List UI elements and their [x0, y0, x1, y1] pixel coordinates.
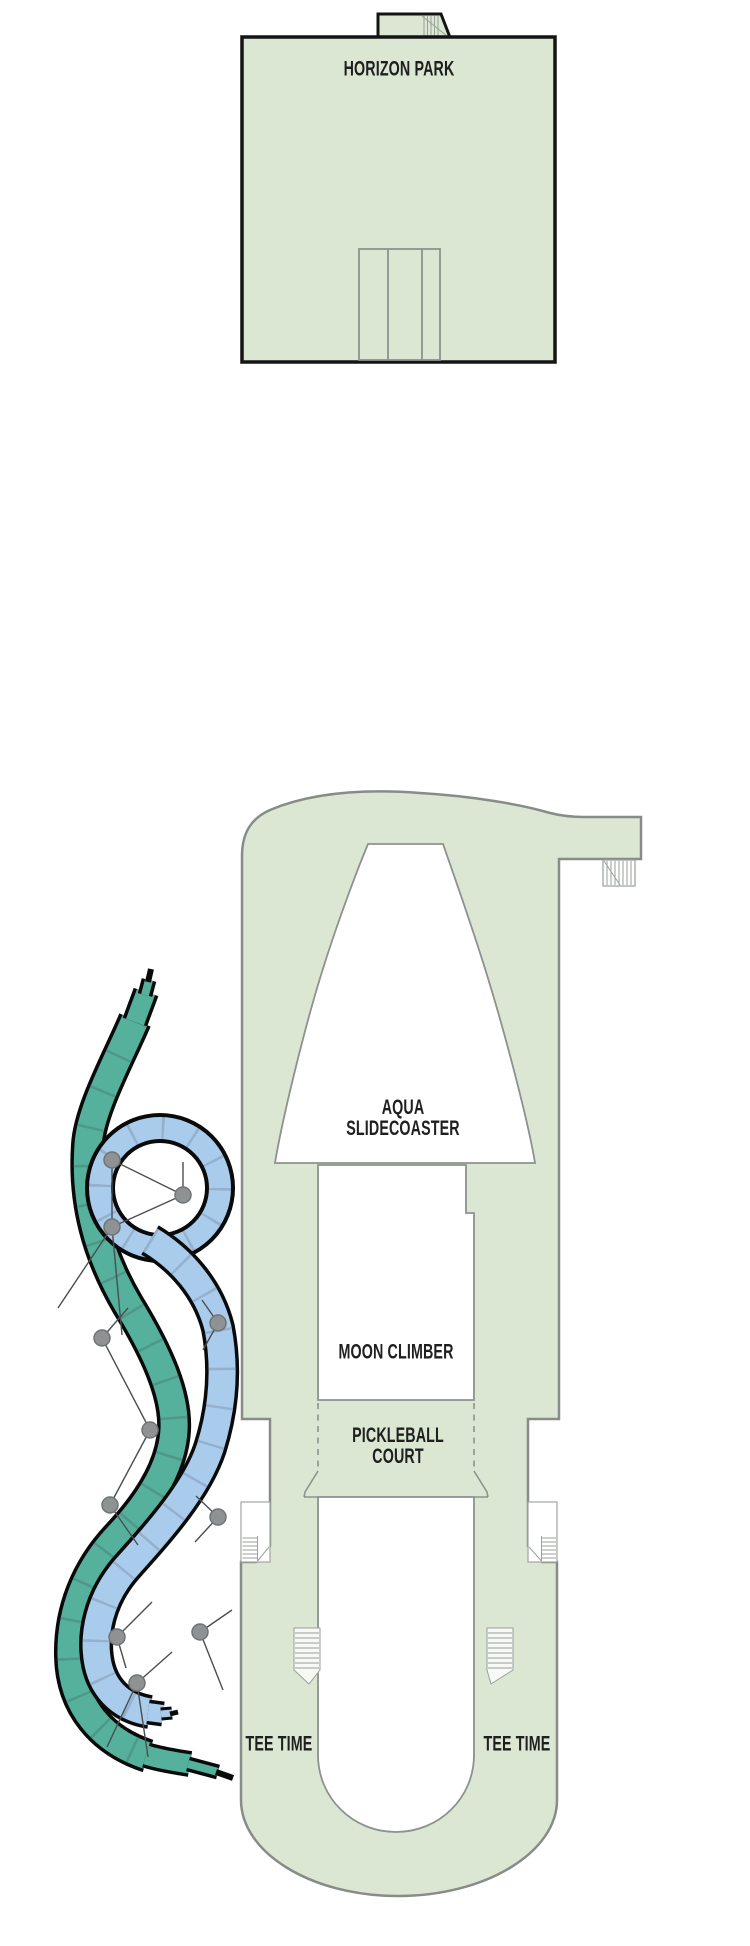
tee-time-right-label: TEE TIME	[484, 1734, 551, 1755]
horizon-park-deck	[242, 37, 555, 362]
aqua-slidecoaster-label: AQUA SLIDECOASTER	[346, 1097, 460, 1139]
moon-climber-area	[318, 1165, 474, 1400]
aqua-slidecoaster-label-line2: SLIDECOASTER	[346, 1118, 460, 1139]
stairs-icon	[241, 1502, 270, 1562]
aqua-slidecoaster-label-line1: AQUA	[346, 1097, 460, 1118]
deck-plan-drawing	[0, 0, 750, 1946]
deck-plan-canvas: HORIZON PARK AQUA SLIDECOASTER MOON CLIM…	[0, 0, 750, 1946]
horizon-park-label: HORIZON PARK	[344, 59, 455, 80]
pickleball-court-label-line1: PICKLEBALL	[352, 1425, 444, 1446]
deck-central-opening	[318, 1497, 474, 1832]
tee-time-left-label: TEE TIME	[246, 1734, 313, 1755]
moon-climber-label: MOON CLIMBER	[338, 1342, 453, 1363]
stairs-icon	[603, 860, 635, 886]
stairs-icon	[528, 1502, 557, 1562]
pickleball-court-label-line2: COURT	[352, 1446, 444, 1467]
pickleball-court-label: PICKLEBALL COURT	[352, 1425, 444, 1467]
